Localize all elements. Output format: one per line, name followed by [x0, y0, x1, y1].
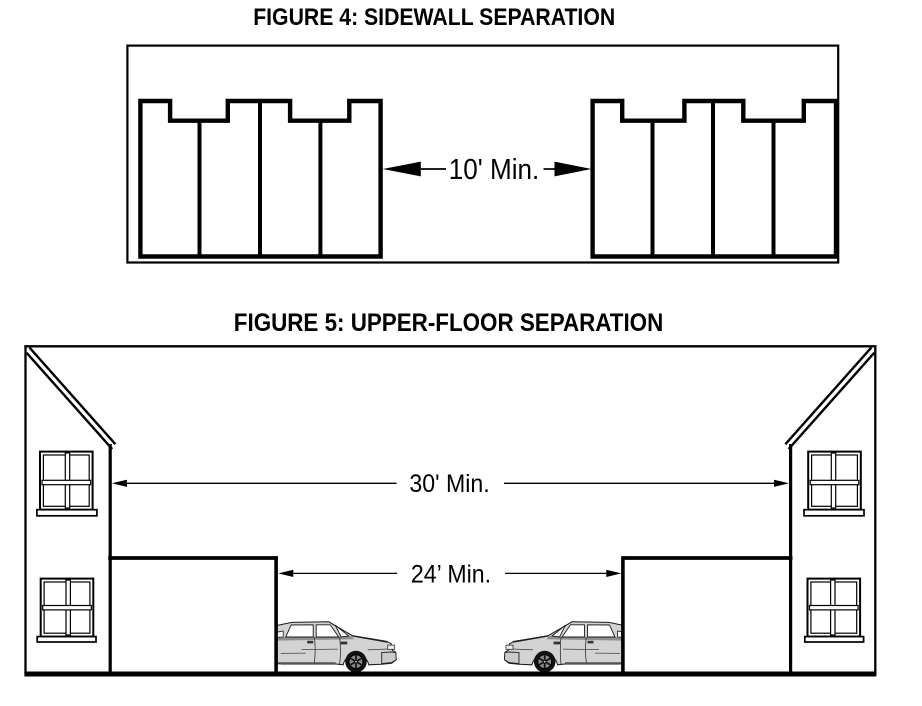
svg-text:FIGURE 4: SIDEWALL SEPARATION: FIGURE 4: SIDEWALL SEPARATION [253, 3, 615, 31]
svg-text:24’ Min.: 24’ Min. [411, 561, 491, 589]
svg-text:FIGURE 5: UPPER-FLOOR SEPARATI: FIGURE 5: UPPER-FLOOR SEPARATION [234, 310, 663, 337]
svg-text:30' Min.: 30' Min. [409, 470, 489, 498]
svg-text:10' Min.: 10' Min. [449, 153, 539, 185]
